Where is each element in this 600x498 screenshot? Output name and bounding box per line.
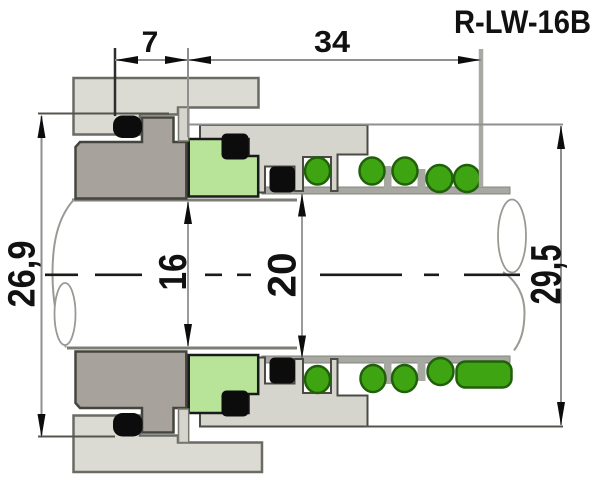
svg-text:R-LW-16B: R-LW-16B (454, 4, 591, 40)
svg-text:26,9: 26,9 (2, 241, 44, 308)
svg-text:29,5: 29,5 (523, 245, 571, 305)
svg-text:7: 7 (142, 26, 159, 59)
svg-text:16: 16 (152, 254, 195, 291)
svg-text:34: 34 (314, 24, 351, 59)
svg-text:20: 20 (261, 253, 305, 298)
